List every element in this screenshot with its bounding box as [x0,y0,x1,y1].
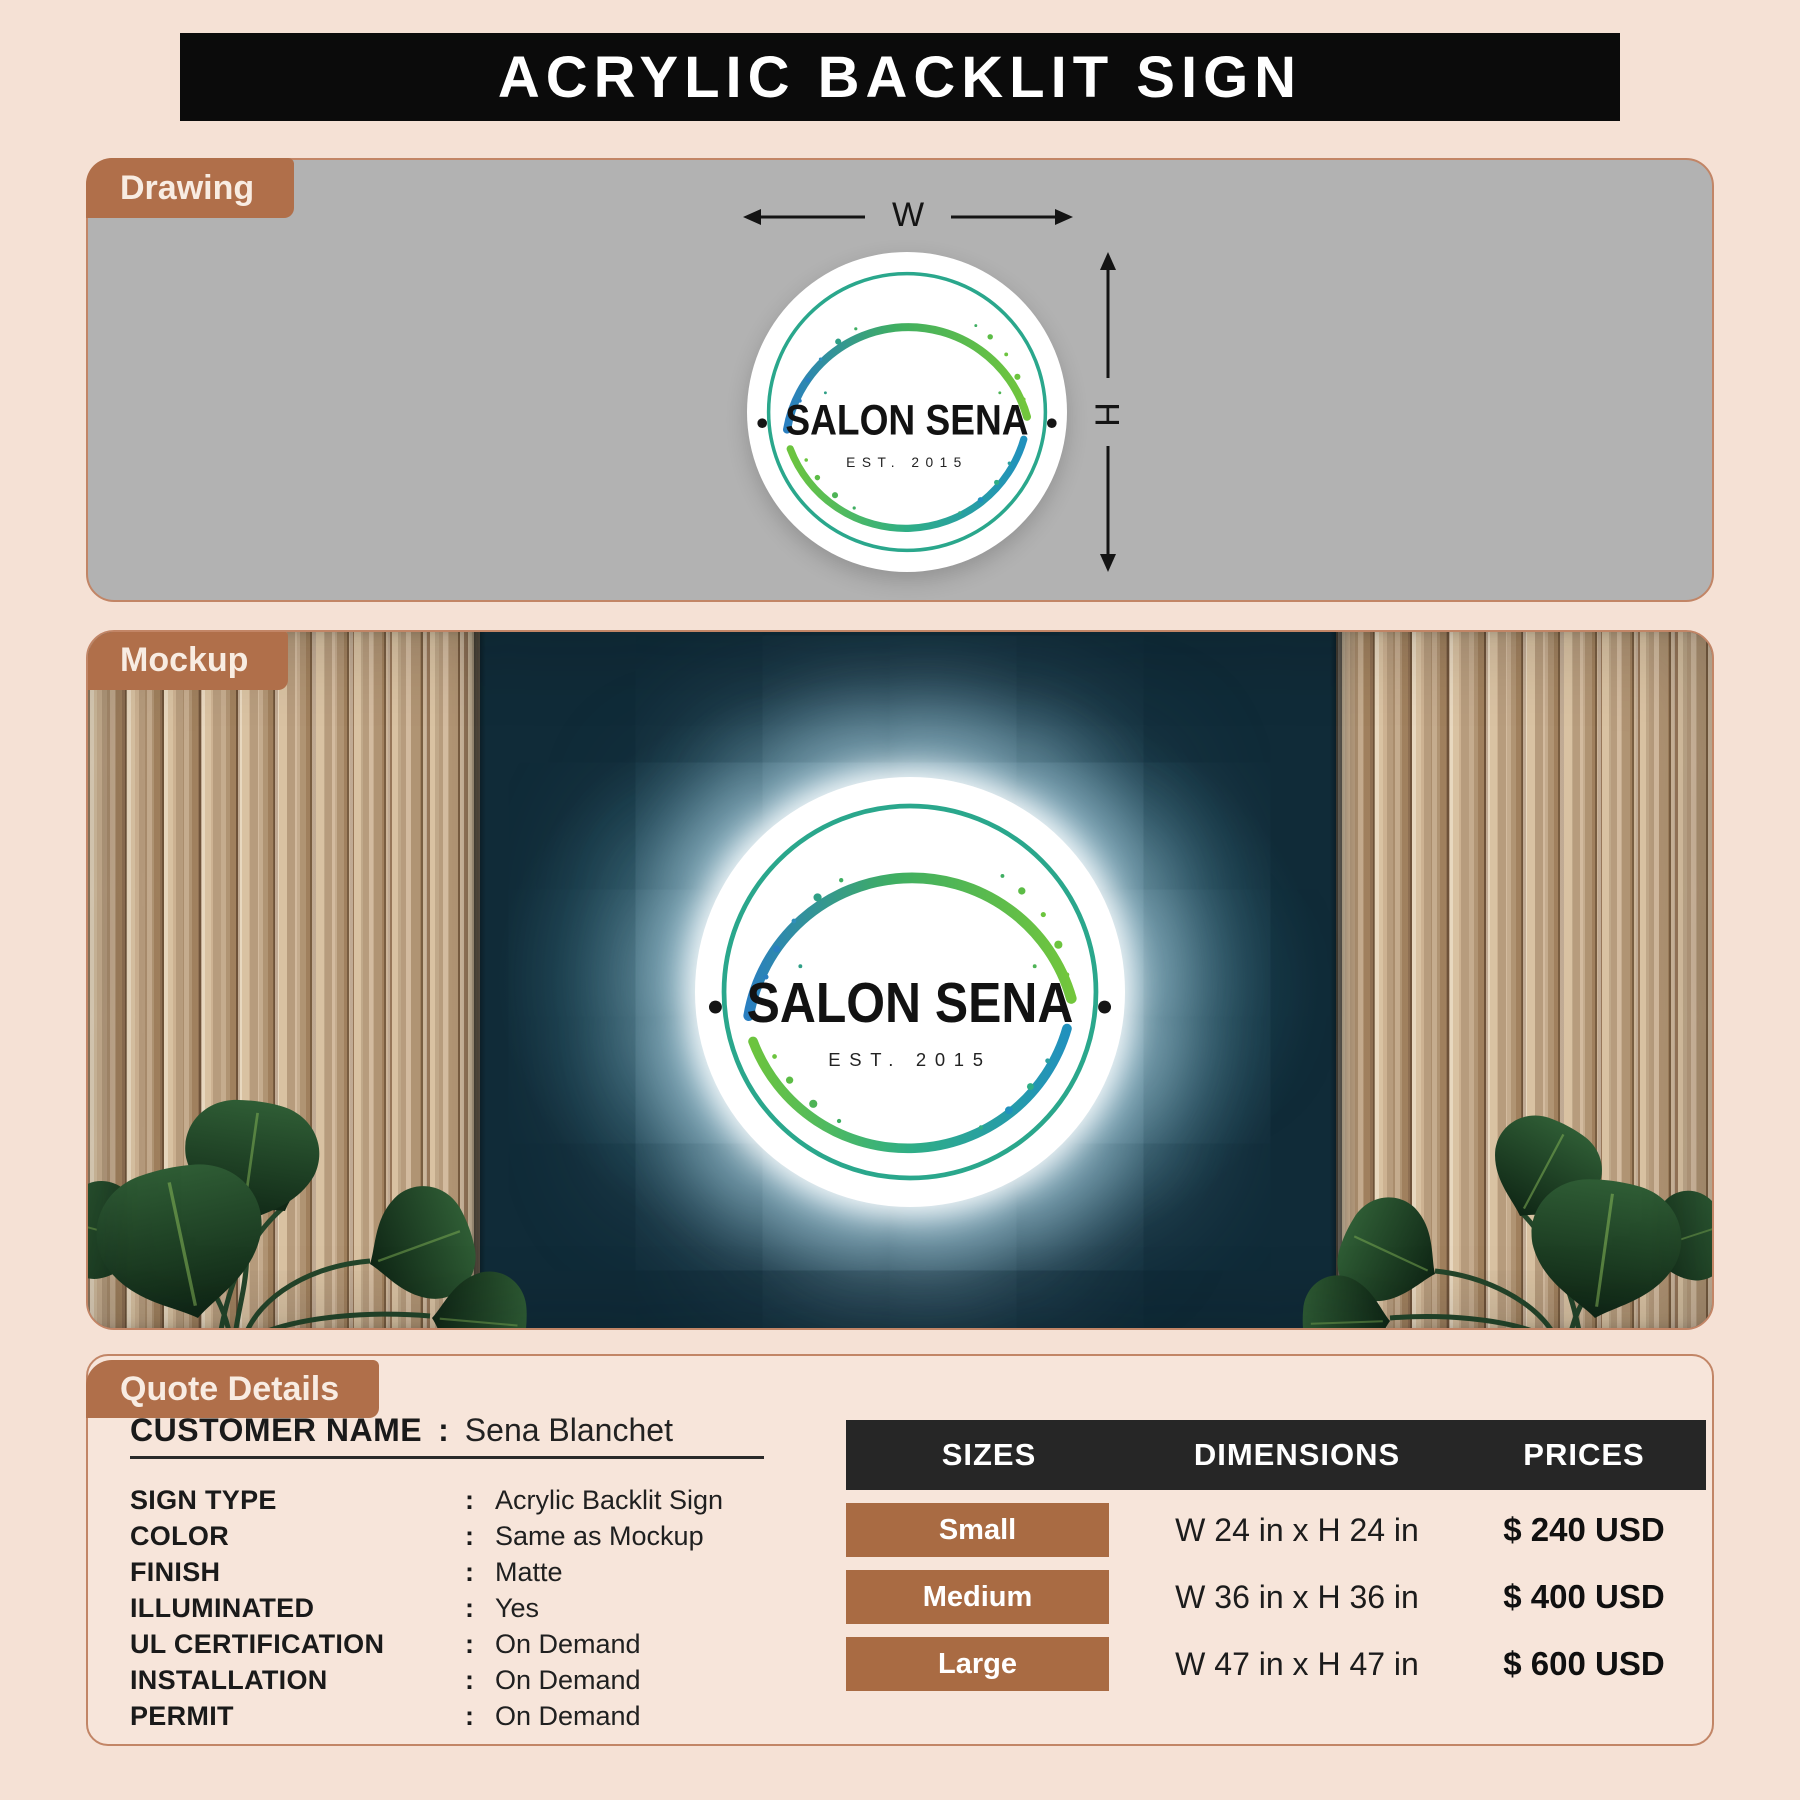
dimensions-value: W 47 in x H 47 in [1132,1646,1462,1683]
spec-value: Matte [495,1557,563,1588]
quote-section-label-text: Quote Details [120,1370,339,1409]
plant-right-icon [1290,1086,1714,1330]
pricing-table: SIZES DIMENSIONS PRICES Small W 24 in x … [846,1420,1706,1691]
spec-row-color: COLOR : Same as Mockup [130,1518,790,1554]
size-badge: Small [846,1503,1109,1557]
drawing-panel: Drawing W H [86,158,1714,602]
drawing-section-label-text: Drawing [120,169,254,208]
sign-drawing: SALON SENA EST. 2015 [747,252,1067,572]
table-row-small: Small W 24 in x H 24 in $ 240 USD [846,1503,1706,1557]
salon-sena-logo-icon: SALON SENA EST. 2015 [747,252,1067,572]
height-dimension-arrow: H [1091,252,1125,572]
spec-label: FINISH [130,1557,465,1588]
sign-mockup-illuminated: SALON SENA EST. 2015 [695,777,1125,1207]
size-badge: Large [846,1637,1109,1691]
spec-label: COLOR [130,1521,465,1552]
drawing-section-label: Drawing [86,158,294,218]
logo-established-text: EST. 2015 [828,1049,991,1070]
spec-label: INSTALLATION [130,1665,465,1696]
spec-separator: : [465,1557,495,1588]
spec-separator: : [465,1521,495,1552]
spec-row-ul-certification: UL CERTIFICATION : On Demand [130,1626,790,1662]
dimensions-value: W 36 in x H 36 in [1132,1579,1462,1616]
spec-row-sign-type: SIGN TYPE : Acrylic Backlit Sign [130,1482,790,1518]
spec-row-installation: INSTALLATION : On Demand [130,1662,790,1698]
header-dimensions: DIMENSIONS [1132,1437,1462,1473]
page-title: ACRYLIC BACKLIT SIGN [498,44,1302,111]
plant-left-icon [86,1066,570,1330]
table-row-large: Large W 47 in x H 47 in $ 600 USD [846,1637,1706,1691]
dimensions-value: W 24 in x H 24 in [1132,1512,1462,1549]
spec-value: Same as Mockup [495,1521,704,1552]
customer-name-value: Sena Blanchet [465,1412,673,1449]
mockup-section-label: Mockup [86,630,288,690]
spec-row-finish: FINISH : Matte [130,1554,790,1590]
title-banner: ACRYLIC BACKLIT SIGN [180,33,1620,121]
price-value: $ 600 USD [1462,1645,1706,1683]
spec-value: Acrylic Backlit Sign [495,1485,723,1516]
table-row-medium: Medium W 36 in x H 36 in $ 400 USD [846,1570,1706,1624]
quote-section-label: Quote Details [86,1360,379,1418]
spec-separator: : [465,1629,495,1660]
mockup-section-label-text: Mockup [120,641,248,680]
spec-value: On Demand [495,1629,641,1660]
header-sizes: SIZES [846,1437,1132,1473]
price-value: $ 400 USD [1462,1578,1706,1616]
size-badge: Medium [846,1570,1109,1624]
logo-brand-text: SALON SENA [747,971,1074,1035]
spec-row-permit: PERMIT : On Demand [130,1698,790,1734]
spec-value: Yes [495,1593,539,1624]
salon-sena-logo-icon: SALON SENA EST. 2015 [695,777,1125,1207]
spec-separator: : [465,1665,495,1696]
quote-sheet: ACRYLIC BACKLIT SIGN Drawing W H [0,0,1800,1800]
spec-row-illuminated: ILLUMINATED : Yes [130,1590,790,1626]
spec-value: On Demand [495,1665,641,1696]
logo-established-text: EST. 2015 [846,455,968,470]
quote-details-panel: Quote Details CUSTOMER NAME : Sena Blanc… [86,1354,1714,1746]
spec-separator: : [465,1485,495,1516]
spec-label: PERMIT [130,1701,465,1732]
customer-name-underline [130,1456,764,1459]
width-dimension-arrow: W [743,202,1073,232]
customer-name-separator: : [438,1412,449,1449]
mockup-panel: SALON SENA EST. 2015 [86,630,1714,1330]
spec-value: On Demand [495,1701,641,1732]
height-label: H [1087,398,1126,432]
spec-label: ILLUMINATED [130,1593,465,1624]
header-prices: PRICES [1462,1437,1706,1473]
spec-label: SIGN TYPE [130,1485,465,1516]
price-value: $ 240 USD [1462,1511,1706,1549]
spec-separator: : [465,1701,495,1732]
width-label: W [743,196,1073,235]
logo-brand-text: SALON SENA [785,396,1028,443]
spec-list: SIGN TYPE : Acrylic Backlit Sign COLOR :… [130,1482,790,1734]
spec-separator: : [465,1593,495,1624]
pricing-table-header: SIZES DIMENSIONS PRICES [846,1420,1706,1490]
spec-label: UL CERTIFICATION [130,1629,465,1660]
